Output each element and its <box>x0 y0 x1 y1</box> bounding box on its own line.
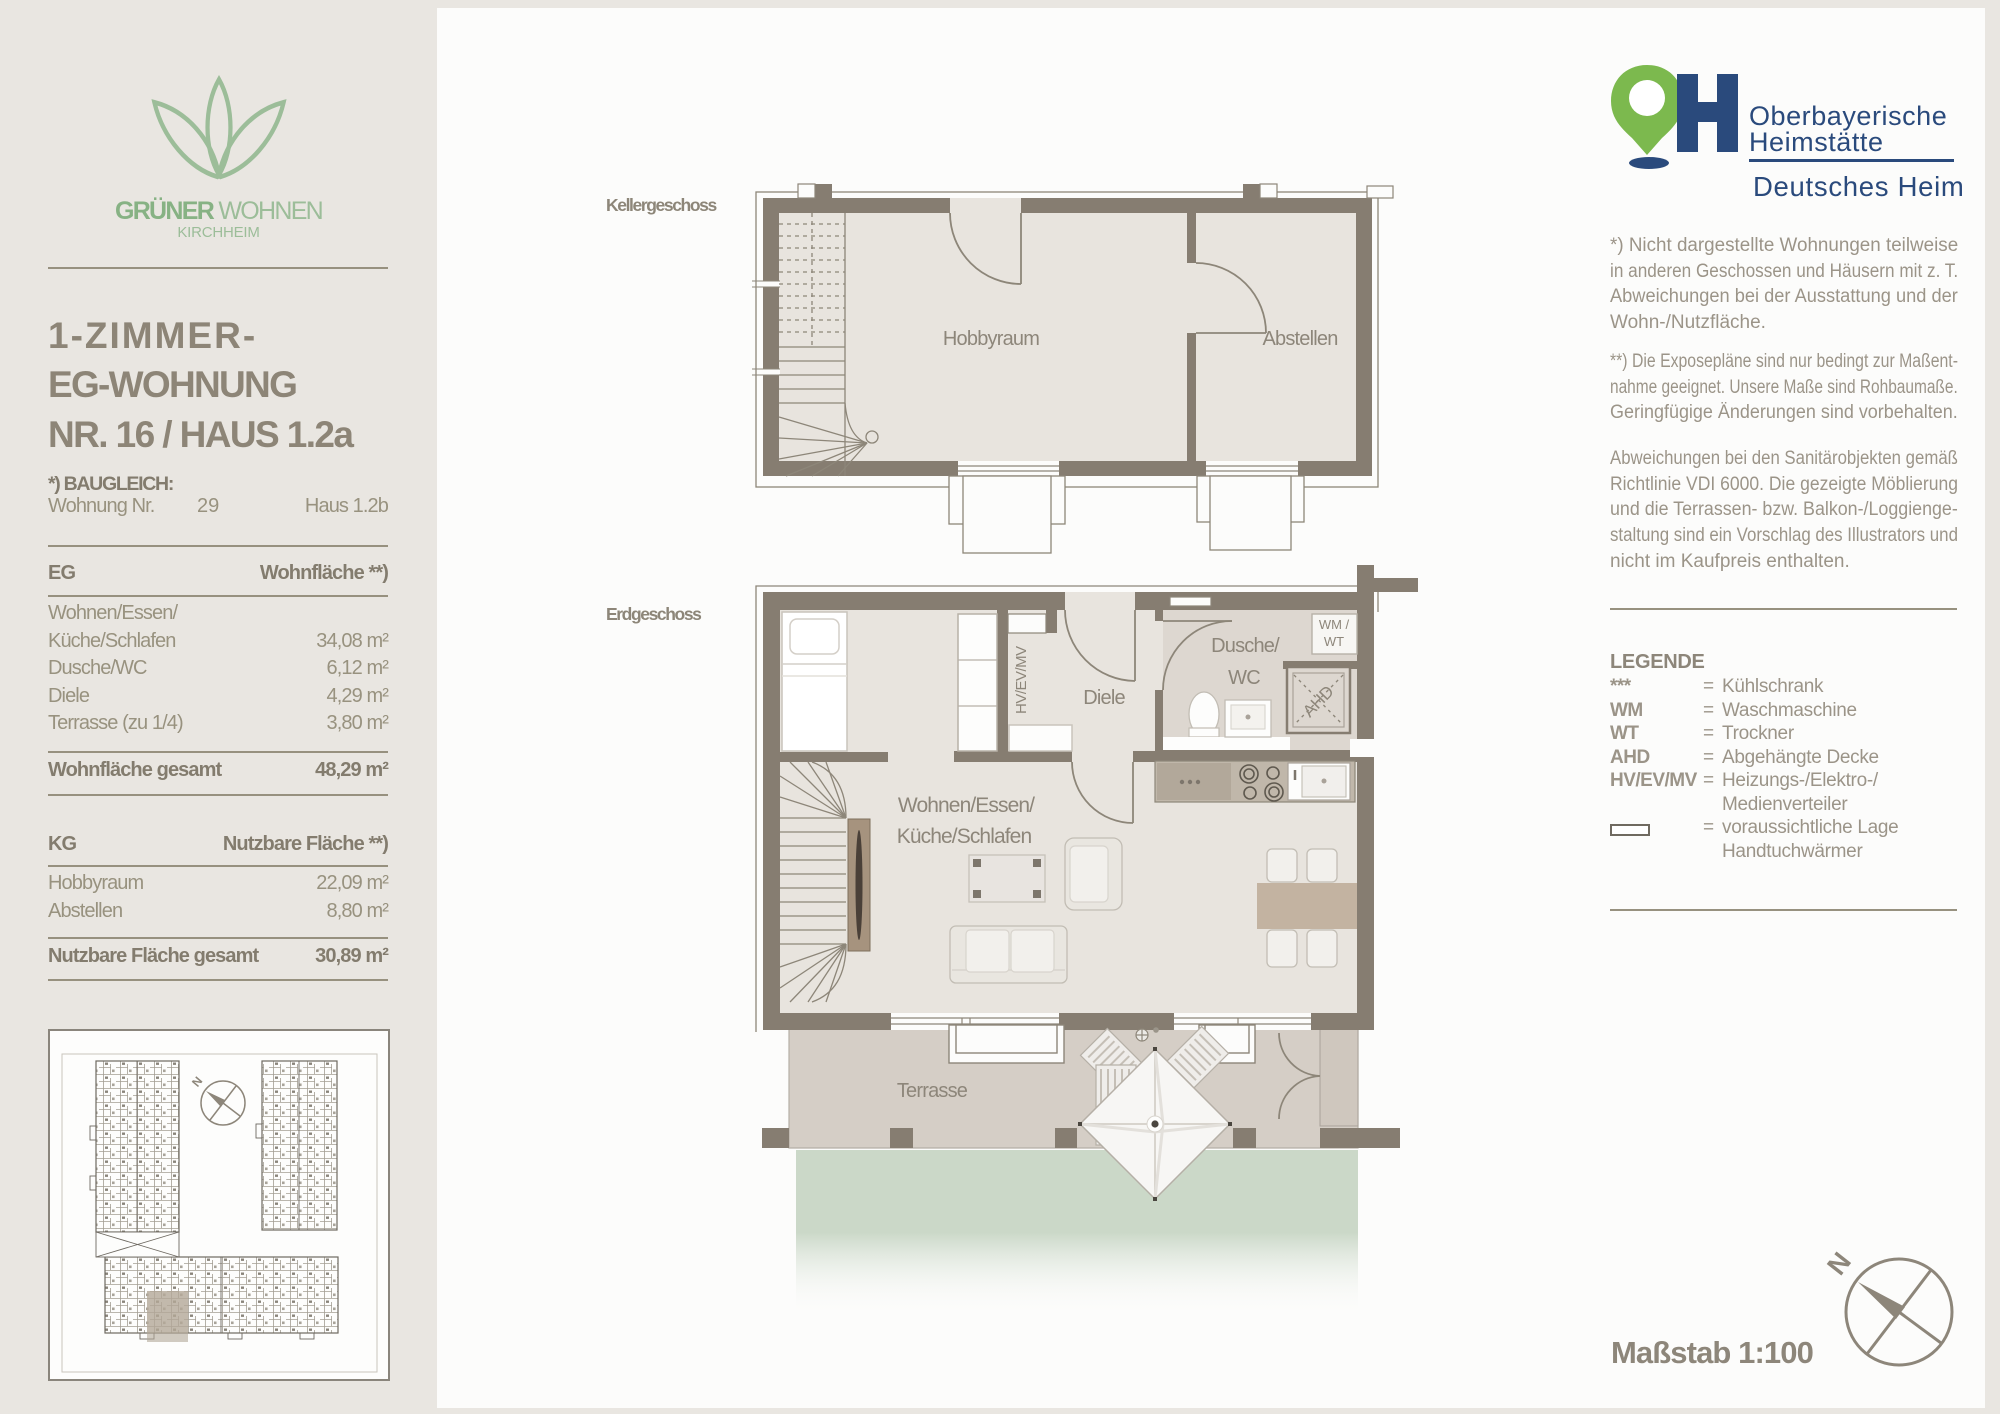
svg-text:Terrasse: Terrasse <box>897 1080 968 1102</box>
svg-text:Dusche/: Dusche/ <box>1211 635 1280 657</box>
svg-text:N: N <box>1821 1247 1857 1281</box>
svg-text:Hobbyraum: Hobbyraum <box>943 328 1039 350</box>
svg-text:WC: WC <box>1228 667 1260 689</box>
svg-text:Abstellen: Abstellen <box>1262 328 1337 350</box>
svg-text:Küche/Schlafen: Küche/Schlafen <box>897 825 1032 848</box>
svg-text:Erdgeschoss: Erdgeschoss <box>606 604 702 624</box>
svg-text:Diele: Diele <box>1083 687 1125 709</box>
svg-text:WT: WT <box>1324 634 1344 649</box>
svg-text:Wohnen/Essen/: Wohnen/Essen/ <box>898 794 1035 817</box>
svg-text:HV/EV/MV: HV/EV/MV <box>1013 646 1030 714</box>
svg-text:WM /: WM / <box>1319 617 1350 632</box>
svg-text:Kellergeschoss: Kellergeschoss <box>606 195 717 215</box>
